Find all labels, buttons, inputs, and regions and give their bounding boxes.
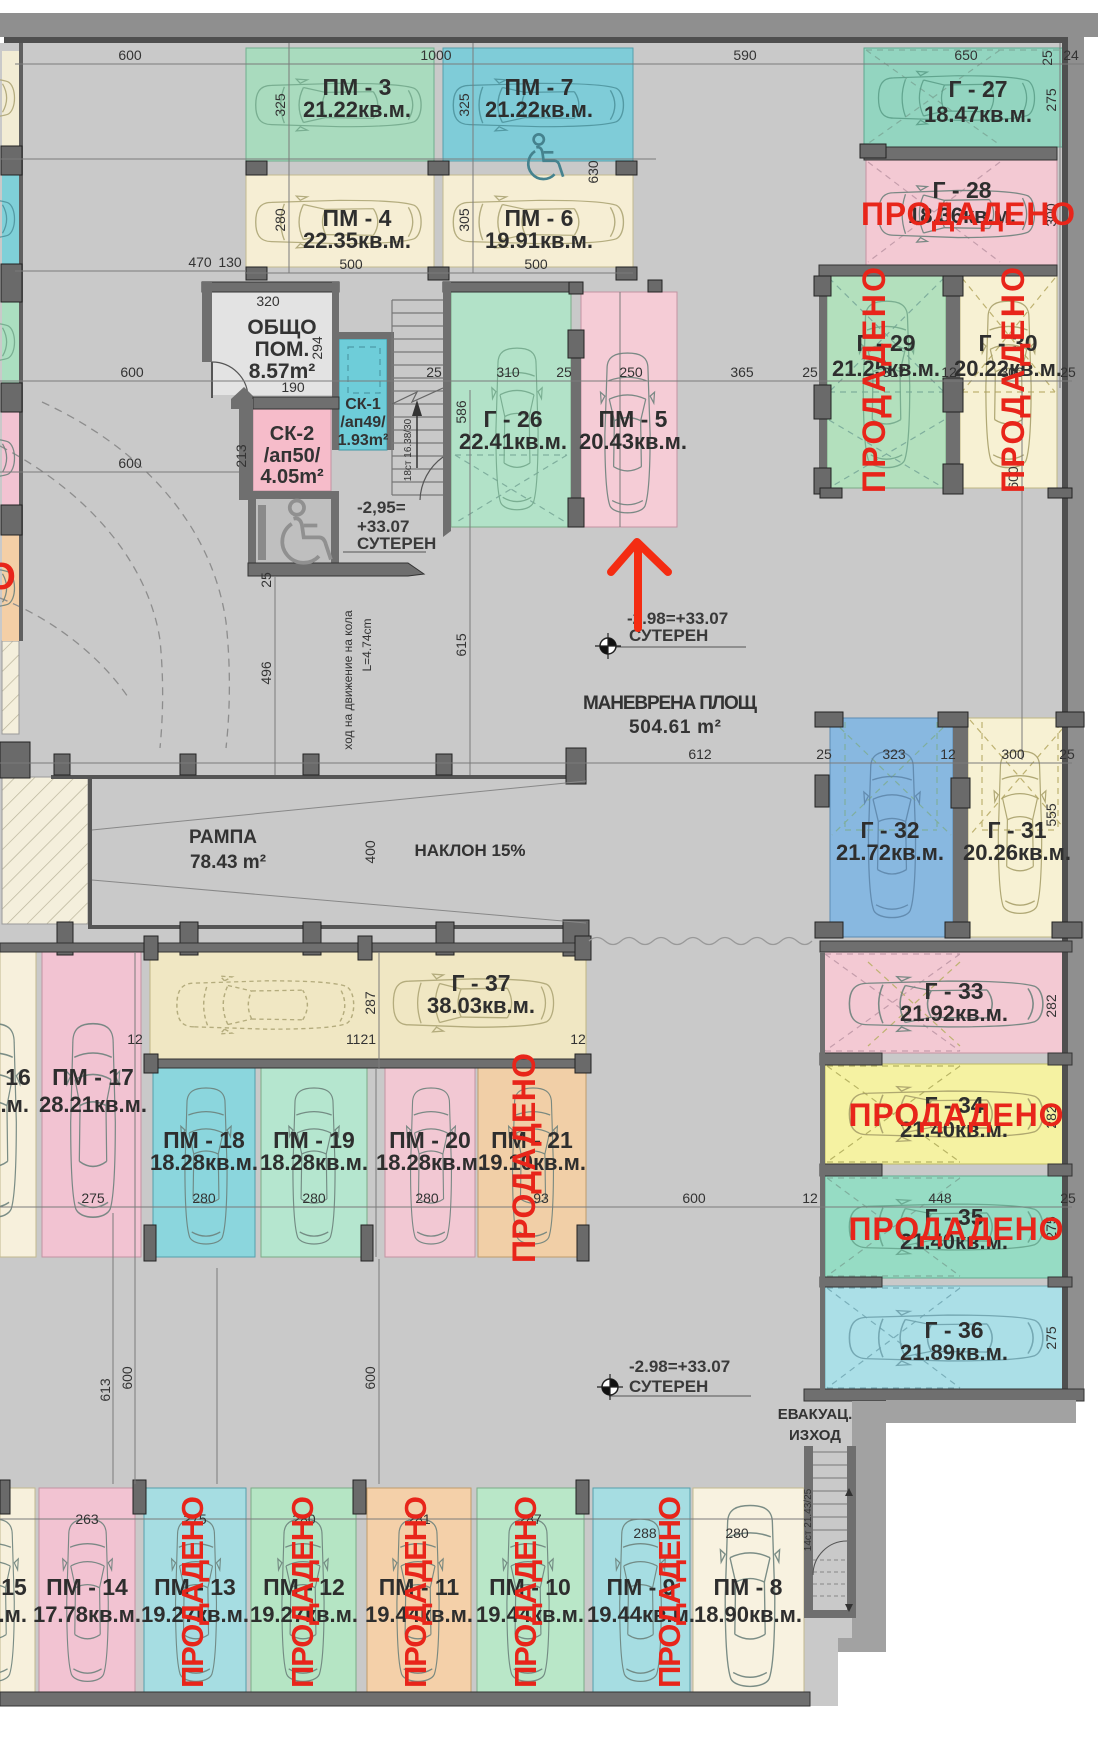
- svg-text:18ст 16.38/30: 18ст 16.38/30: [403, 418, 414, 481]
- svg-text:28.21кв.м.: 28.21кв.м.: [39, 1092, 147, 1117]
- svg-text:280: 280: [192, 1190, 216, 1206]
- svg-text:615: 615: [453, 633, 469, 657]
- svg-text:500: 500: [524, 256, 548, 272]
- svg-text:-2,95=: -2,95=: [357, 498, 406, 517]
- svg-text:18.28кв.м.: 18.28кв.м.: [376, 1150, 484, 1175]
- svg-text:1.93m²: 1.93m²: [338, 432, 389, 449]
- svg-text:СК-2: СК-2: [270, 423, 314, 445]
- svg-text:38.03кв.м.: 38.03кв.м.: [427, 993, 535, 1018]
- svg-text:613: 613: [97, 1378, 113, 1402]
- svg-text:18.28кв.м.: 18.28кв.м.: [150, 1150, 258, 1175]
- svg-text:586: 586: [453, 400, 469, 424]
- svg-text:ПОМ.: ПОМ.: [255, 338, 310, 361]
- svg-text:600: 600: [362, 1366, 378, 1390]
- svg-text:НАКЛОН 15%: НАКЛОН 15%: [414, 841, 525, 860]
- svg-text:275: 275: [81, 1190, 105, 1206]
- svg-text:в.м.: в.м.: [0, 1092, 29, 1117]
- svg-text:18.28кв.м.: 18.28кв.м.: [260, 1150, 368, 1175]
- svg-text:25: 25: [1060, 364, 1076, 380]
- svg-text:600: 600: [118, 47, 142, 63]
- svg-text:25: 25: [1059, 746, 1075, 762]
- svg-text:275: 275: [1043, 1326, 1059, 1350]
- svg-text:ПМ - 14: ПМ - 14: [46, 1574, 128, 1600]
- svg-text:25: 25: [556, 364, 572, 380]
- svg-text:ПРОДАДЕНО: ПРОДАДЕНО: [285, 1496, 320, 1688]
- svg-text:/ап49/: /ап49/: [340, 414, 386, 431]
- svg-text:15: 15: [1, 1574, 27, 1600]
- svg-text:-2.98=+33.07: -2.98=+33.07: [629, 1357, 730, 1376]
- svg-text:21.72кв.м.: 21.72кв.м.: [836, 840, 944, 865]
- svg-text:25: 25: [258, 572, 274, 588]
- svg-text:ПМ - 17: ПМ - 17: [52, 1064, 134, 1090]
- svg-text:25: 25: [1060, 1190, 1076, 1206]
- svg-text:L=4.74cm: L=4.74cm: [360, 618, 374, 671]
- svg-text:612: 612: [688, 746, 712, 762]
- svg-text:630: 630: [585, 160, 601, 184]
- svg-text:ОБЩО: ОБЩО: [247, 316, 316, 339]
- svg-text:590: 590: [733, 47, 757, 63]
- svg-text:ПРОДАДЕНО: ПРОДАДЕНО: [995, 267, 1031, 493]
- svg-text:12: 12: [570, 1031, 586, 1047]
- svg-text:470: 470: [188, 254, 212, 270]
- svg-text:ПРОДАДЕНО: ПРОДАДЕНО: [849, 1211, 1064, 1247]
- svg-text:25: 25: [802, 364, 818, 380]
- svg-text:СУТЕРЕН: СУТЕРЕН: [629, 1377, 708, 1396]
- svg-text:323: 323: [882, 746, 906, 762]
- svg-text:400: 400: [362, 840, 378, 864]
- svg-text:О: О: [0, 556, 16, 598]
- svg-text:12: 12: [127, 1031, 143, 1047]
- svg-text:504.61 m²: 504.61 m²: [629, 717, 721, 738]
- svg-text:12: 12: [940, 746, 956, 762]
- svg-text:в.м.: в.м.: [0, 1602, 27, 1627]
- svg-text:ПРОДАДЕНО: ПРОДАДЕНО: [398, 1496, 433, 1688]
- svg-text:280: 280: [272, 208, 288, 232]
- svg-text:280: 280: [415, 1190, 439, 1206]
- svg-text:600: 600: [118, 455, 142, 471]
- svg-text:СУТЕРЕН: СУТЕРЕН: [357, 534, 436, 553]
- svg-text:ПРОДАДЕНО: ПРОДАДЕНО: [856, 267, 892, 493]
- svg-text:78.43 m²: 78.43 m²: [190, 852, 266, 873]
- svg-text:14ст 21.43/25: 14ст 21.43/25: [803, 1488, 814, 1551]
- svg-text:263: 263: [75, 1511, 99, 1527]
- svg-text:ИЗХОД: ИЗХОД: [789, 1427, 841, 1444]
- svg-text:18.90кв.м.: 18.90кв.м.: [694, 1602, 802, 1627]
- svg-text:250: 250: [619, 364, 643, 380]
- svg-text:ПРОДАДЕНО: ПРОДАДЕНО: [849, 1097, 1064, 1133]
- svg-text:25: 25: [816, 746, 832, 762]
- svg-text:ПРОДАДЕНО: ПРОДАДЕНО: [861, 196, 1075, 232]
- svg-text:280: 280: [725, 1525, 749, 1541]
- svg-text:/ап50/: /ап50/: [264, 445, 321, 467]
- svg-text:21.89кв.м.: 21.89кв.м.: [900, 1340, 1008, 1365]
- svg-text:275: 275: [1043, 88, 1059, 112]
- svg-text:1121: 1121: [346, 1031, 376, 1047]
- svg-text:280: 280: [302, 1190, 326, 1206]
- svg-text:8.57m²: 8.57m²: [249, 360, 316, 383]
- svg-text:22.41кв.м.: 22.41кв.м.: [459, 429, 567, 454]
- svg-text:325: 325: [272, 93, 288, 117]
- svg-text:17.78кв.м.: 17.78кв.м.: [33, 1602, 141, 1627]
- svg-text:500: 500: [339, 256, 363, 272]
- svg-text:213: 213: [233, 444, 249, 468]
- svg-text:Г - 27: Г - 27: [948, 76, 1007, 102]
- svg-text:СК-1: СК-1: [345, 396, 381, 413]
- svg-text:294: 294: [309, 336, 325, 360]
- svg-text:МАНЕВРЕНА ПЛОЩ: МАНЕВРЕНА ПЛОЩ: [583, 693, 758, 714]
- svg-text:600: 600: [120, 364, 144, 380]
- svg-text:130: 130: [218, 254, 242, 270]
- svg-text:ПРОДАДЕНО: ПРОДАДЕНО: [506, 1053, 542, 1263]
- svg-text:20.26кв.м.: 20.26кв.м.: [963, 840, 1071, 865]
- svg-text:22.35кв.м.: 22.35кв.м.: [303, 228, 411, 253]
- svg-text:21.22кв.м.: 21.22кв.м.: [303, 97, 411, 122]
- svg-text:21.92кв.м.: 21.92кв.м.: [900, 1001, 1008, 1026]
- svg-text:300: 300: [1001, 746, 1025, 762]
- svg-text:650: 650: [954, 47, 978, 63]
- svg-text:ПРОДАДЕНО: ПРОДАДЕНО: [652, 1496, 687, 1688]
- svg-text:20.43кв.м.: 20.43кв.м.: [579, 429, 687, 454]
- svg-text:325: 325: [456, 93, 472, 117]
- svg-text:19.91кв.м.: 19.91кв.м.: [485, 228, 593, 253]
- svg-text:ход на движение на кола: ход на движение на кола: [341, 610, 355, 750]
- svg-text:РАМПА: РАМПА: [189, 827, 257, 848]
- svg-text:282: 282: [1043, 994, 1059, 1018]
- svg-text:600: 600: [119, 1366, 135, 1390]
- svg-text:ПМ - 8: ПМ - 8: [714, 1574, 783, 1600]
- svg-text:ЕВАКУАЦ.: ЕВАКУАЦ.: [778, 1406, 853, 1423]
- svg-text:25: 25: [1039, 50, 1055, 66]
- svg-text:305: 305: [456, 208, 472, 232]
- svg-text:18.47кв.м.: 18.47кв.м.: [924, 102, 1032, 127]
- svg-text:ПРОДАДЕНО: ПРОДАДЕНО: [508, 1496, 543, 1688]
- svg-text:4.05m²: 4.05m²: [260, 466, 324, 488]
- svg-text:1000: 1000: [420, 47, 451, 63]
- svg-text:ПРОДАДЕНО: ПРОДАДЕНО: [175, 1496, 210, 1688]
- svg-text:600: 600: [682, 1190, 706, 1206]
- svg-text:320: 320: [256, 293, 280, 309]
- svg-text:12: 12: [802, 1190, 818, 1206]
- svg-text:365: 365: [730, 364, 754, 380]
- svg-text:310: 310: [496, 364, 520, 380]
- svg-text:16: 16: [5, 1064, 31, 1090]
- svg-text:24: 24: [1063, 47, 1079, 63]
- svg-text:496: 496: [258, 661, 274, 685]
- svg-text:287: 287: [362, 991, 378, 1015]
- svg-text:21.22кв.м.: 21.22кв.м.: [485, 97, 593, 122]
- svg-text:25: 25: [426, 364, 442, 380]
